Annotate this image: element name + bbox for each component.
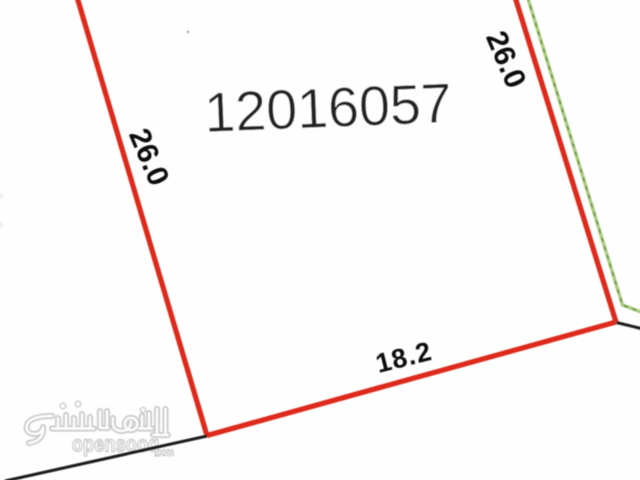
svg-text:opensooq: opensooq xyxy=(72,433,159,457)
svg-text:.com: .com xyxy=(154,447,174,459)
svg-text:12016057: 12016057 xyxy=(203,71,453,144)
